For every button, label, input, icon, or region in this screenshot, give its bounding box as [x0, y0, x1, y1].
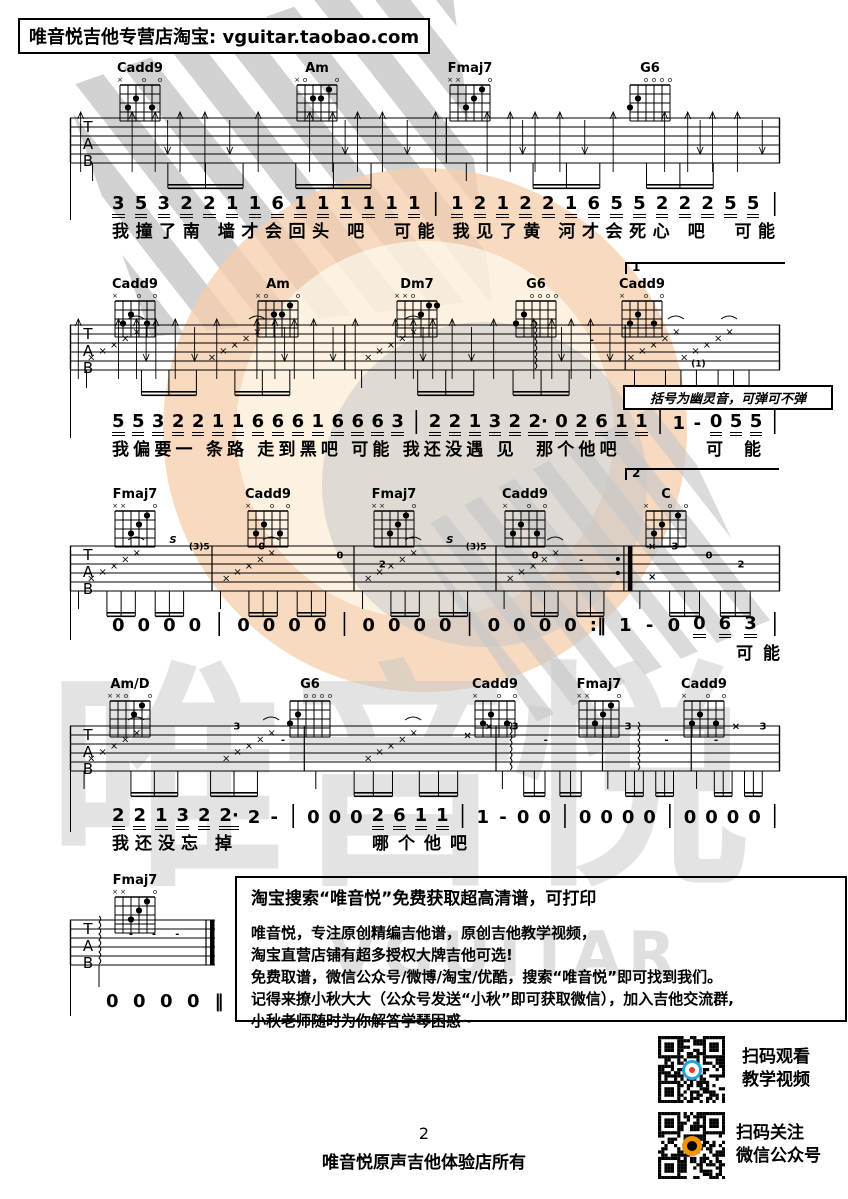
lyrics-row: 我偏要一条路走到黑吧可能我还没遇见那个他吧 [112, 440, 617, 460]
lyric-char: 我 [112, 440, 129, 460]
melody-number: 1 [415, 806, 428, 830]
lyric-char: 可 [706, 440, 723, 460]
lyric-char: 撞 [136, 222, 153, 242]
svg-text:×: × [364, 753, 372, 764]
melody-number: 5 [747, 194, 760, 218]
melody-number: 3 [112, 194, 125, 218]
lyric-char: 吧 [347, 222, 364, 242]
svg-text:0: 0 [258, 542, 265, 553]
svg-text:-: - [175, 929, 179, 940]
lyric-char: 能 [417, 222, 434, 242]
svg-text:-: - [714, 735, 718, 746]
lyric-char: 头 [312, 222, 329, 242]
svg-text:×: × [121, 555, 129, 566]
svg-text:-: - [152, 929, 156, 940]
svg-text:×: × [110, 561, 118, 572]
svg-text:×: × [117, 76, 123, 84]
tab-staff: TAB [68, 104, 784, 198]
lyric-char [527, 440, 532, 460]
lyric-char: 忘 [181, 834, 198, 854]
lyric-char: 河 [558, 222, 575, 242]
melody-number: 3 [158, 194, 171, 218]
svg-text:×: × [455, 76, 461, 84]
melody-number: 3 [176, 806, 189, 830]
svg-text:o: o [270, 502, 274, 510]
lyric-char: 才 [582, 222, 599, 242]
melody-number: 2· [528, 412, 547, 436]
svg-text:×: × [648, 542, 656, 553]
svg-text:×: × [256, 735, 264, 746]
chord-label: Fmaj7 [366, 488, 422, 501]
svg-text:×: × [627, 352, 635, 363]
svg-text:×: × [121, 334, 129, 345]
chord-label: G6 [622, 62, 678, 75]
melody-number: 0 [388, 614, 401, 638]
melody-number: 0 [693, 614, 706, 638]
svg-text:(1): (1) [691, 359, 706, 369]
lyric-char [342, 440, 347, 460]
lyric-char [336, 222, 341, 242]
lyric-char: 墙 [218, 222, 235, 242]
lyric-char [731, 440, 736, 460]
svg-text:o: o [264, 292, 268, 300]
lyric-char: 走 [257, 440, 274, 460]
lyric-char: 我 [403, 440, 420, 460]
chord-label: Fmaj7 [442, 62, 498, 75]
melody-number: 0 [622, 806, 635, 830]
svg-text:0: 0 [532, 551, 539, 562]
lyric-char: 了 [159, 222, 176, 242]
svg-text:×: × [409, 548, 417, 559]
svg-text:×: × [242, 334, 250, 345]
melody-number: 6 [271, 194, 284, 218]
svg-text:o: o [684, 502, 688, 510]
lyric-char: 能 [372, 440, 389, 460]
melody-number: 2 [112, 806, 125, 830]
lyric-char: 我 [112, 222, 129, 242]
melody-number: 0 [329, 806, 342, 830]
melody-number: 0 [579, 806, 592, 830]
svg-text:×: × [394, 292, 400, 300]
lyric-char: 能 [758, 222, 775, 242]
lyric-char: 会 [265, 222, 282, 242]
svg-text:o: o [328, 692, 332, 700]
svg-text:o: o [722, 692, 726, 700]
svg-text:o: o [411, 292, 415, 300]
lyric-char: 没 [445, 440, 462, 460]
chord-label: Am/D [102, 678, 158, 691]
svg-text:-: - [544, 735, 548, 746]
melody-number: 1 [615, 412, 628, 436]
ghost-note-box: 括号为幽灵音，可弹可不弹 [623, 385, 833, 410]
melody-numbers-row: 0000‖ [106, 990, 224, 1014]
promo-line: 唯音悦，专注原创精编吉他谱，原创吉他教学视频， [251, 922, 831, 944]
melody-number: 0 [488, 614, 501, 638]
lyric-char: 能 [763, 644, 780, 664]
page-number: 2 [0, 1124, 848, 1143]
svg-text:×: × [691, 346, 699, 357]
chord-label: C [638, 488, 694, 501]
melody-number: 0 [133, 990, 146, 1014]
svg-text:×: × [540, 555, 548, 566]
svg-text:o: o [660, 76, 664, 84]
melody-number: 1 [565, 194, 578, 218]
svg-text:×: × [680, 352, 688, 363]
melody-number: 2 [172, 412, 185, 436]
promo-line: 免费取谱，微信公众号/微博/淘宝/优酷，搜索“唯音悦”即可找到我们。 [251, 966, 831, 988]
qr-video-caption-line2: 教学视频 [742, 1069, 810, 1092]
svg-text:×: × [732, 722, 740, 733]
melody-number: 3 [152, 412, 165, 436]
svg-text:×: × [529, 561, 537, 572]
melody-number: 0 [668, 614, 681, 638]
lyric-char: 吧 [600, 440, 617, 460]
svg-text:×: × [87, 753, 95, 764]
svg-text:×: × [133, 728, 141, 739]
svg-text:B: B [83, 152, 93, 170]
melody-number: - [645, 614, 655, 638]
svg-text:S: S [446, 535, 453, 546]
chord-label: Am [289, 62, 345, 75]
melody-number: 1 [469, 412, 482, 436]
melody-number: 2 [449, 412, 462, 436]
promo-line: 淘宝直营店铺有超多授权大牌吉他可选! [251, 944, 831, 966]
system-rail [70, 591, 71, 640]
svg-text:o: o [543, 502, 547, 510]
melody-number: 5 [633, 194, 646, 218]
melody-number: 2 [133, 806, 146, 830]
svg-text:S: S [169, 535, 176, 546]
lyrics-row: 我撞了南墙才会回头吧可能我见了黄河才会死心吧可能 [112, 222, 775, 242]
svg-text:×: × [398, 334, 406, 345]
melody-number: 2 [542, 194, 555, 218]
svg-text:×: × [506, 573, 514, 584]
chord-label: Cadd9 [676, 678, 732, 691]
tab-staff: TAB--- [68, 906, 219, 1000]
melody-number: 6 [272, 412, 285, 436]
lyric-char: 还 [424, 440, 441, 460]
svg-text:T: T [82, 726, 93, 744]
svg-text:2: 2 [737, 560, 744, 571]
svg-text:3: 3 [625, 722, 632, 733]
lyric-char: 还 [135, 834, 152, 854]
svg-text:×: × [387, 561, 395, 572]
melody-number: 0 [564, 614, 577, 638]
svg-text:T: T [82, 920, 93, 938]
melody-number: 1 [362, 194, 375, 218]
lyric-char: 可 [394, 222, 411, 242]
melody-number: 5 [610, 194, 623, 218]
melody-number: 5 [135, 194, 148, 218]
lyric-char: 能 [744, 440, 761, 460]
melody-number: 6 [331, 412, 344, 436]
svg-text:×: × [87, 573, 95, 584]
svg-text:o: o [286, 502, 290, 510]
svg-text:×: × [447, 76, 453, 84]
chord-label: Cadd9 [107, 278, 163, 291]
melody-number: 0 [314, 614, 327, 638]
melody-number: 0 [684, 806, 697, 830]
lyric-char: 心 [653, 222, 670, 242]
promo-line: 小秋老师随时为你解答学琴困惑~ [251, 1010, 831, 1032]
svg-text:o: o [153, 292, 157, 300]
melody-number: 0 [555, 412, 568, 436]
melody-number: 1 [155, 806, 168, 830]
lyric-char: 吧 [688, 222, 705, 242]
lyrics-row: 我还没忘掉 [112, 834, 232, 854]
system-rail [70, 771, 71, 832]
melody-number: ‖ [214, 990, 224, 1014]
lyric-char: 吧 [450, 834, 467, 854]
lyric-char: 可 [351, 440, 368, 460]
lyric-char [248, 440, 253, 460]
svg-text:o: o [153, 502, 157, 510]
lyric-char: 黑 [300, 440, 317, 460]
svg-text:o: o [142, 76, 146, 84]
svg-text:×: × [208, 352, 216, 363]
svg-text:o: o [527, 502, 531, 510]
svg-text:×: × [375, 346, 383, 357]
melody-number: 3 [391, 412, 404, 436]
melody-number: 1 [496, 194, 509, 218]
svg-text:T: T [82, 546, 93, 564]
chord-label: Fmaj7 [107, 488, 163, 501]
melody-number: 1 [317, 194, 330, 218]
lyric-char: 我 [453, 222, 470, 242]
svg-text:o: o [668, 502, 672, 510]
svg-text:-: - [590, 335, 594, 346]
svg-text:×: × [120, 888, 126, 896]
chord-label: Am [250, 278, 306, 291]
melody-number: | [411, 406, 421, 436]
melody-number: | [770, 608, 780, 638]
lyric-char: 南 [183, 222, 200, 242]
svg-text:×: × [267, 548, 275, 559]
volta-label: 2 [630, 466, 642, 480]
melody-number: 1 [408, 194, 421, 218]
melody-number: | [458, 800, 468, 830]
melody-number: 5 [724, 194, 737, 218]
svg-text:o: o [158, 76, 162, 84]
svg-text:×: × [551, 548, 559, 559]
svg-text:×: × [672, 327, 680, 338]
melody-number: 1 [385, 194, 398, 218]
lyric-char [382, 222, 387, 242]
melody-number: 6 [292, 412, 305, 436]
lyric-char: 他 [424, 834, 441, 854]
melody-number: 5 [112, 412, 125, 436]
svg-text:×: × [463, 731, 471, 742]
melody-number: 5 [132, 412, 145, 436]
qr-code-video [658, 1036, 725, 1107]
svg-text:×: × [371, 502, 377, 510]
lyric-char: 吧 [321, 440, 338, 460]
melody-number: 2 [372, 806, 385, 830]
lyric-char [204, 834, 209, 854]
melody-number: | [288, 800, 298, 830]
melody-number: | [465, 608, 475, 638]
svg-text:o: o [412, 502, 416, 510]
svg-text:×: × [643, 502, 649, 510]
melody-numbers-row: 221322·2-|0002611|1-00|0000|0000| [112, 806, 780, 830]
svg-text:×: × [661, 334, 669, 345]
melody-number: - [498, 806, 508, 830]
svg-text:×: × [112, 888, 118, 896]
lyric-char: 回 [289, 222, 306, 242]
melody-number: 0 [307, 806, 320, 830]
melody-number: 0 [163, 614, 176, 638]
melody-number: | [560, 800, 570, 830]
melody-number: 6 [393, 806, 406, 830]
melody-number: 0 [439, 614, 452, 638]
svg-text:×: × [387, 340, 395, 351]
melody-number: 3 [489, 412, 502, 436]
melody-number: 5 [750, 412, 763, 436]
melody-number: 6 [588, 194, 601, 218]
melody-number: 3 [744, 614, 757, 638]
melody-number: 1 [294, 194, 307, 218]
svg-text:×: × [231, 340, 239, 351]
lyric-char: 个 [557, 440, 574, 460]
svg-text:o: o [513, 692, 517, 700]
lyric-char: 可 [734, 222, 751, 242]
melody-number: | [431, 188, 441, 218]
lyric-char: 见 [476, 222, 493, 242]
lyric-char: 了 [500, 222, 517, 242]
svg-text:o: o [660, 292, 664, 300]
lyrics-row: 可能 [736, 644, 780, 664]
svg-text:o: o [546, 292, 550, 300]
lyric-char [394, 440, 399, 460]
melody-number: 1 [312, 412, 325, 436]
video-logo-icon [682, 1060, 702, 1080]
svg-text:×: × [398, 555, 406, 566]
melody-number: 6 [595, 412, 608, 436]
melody-number: 0 [237, 614, 250, 638]
lyric-char: 一 [176, 440, 193, 460]
melody-number: - [269, 806, 279, 830]
svg-text:-: - [579, 555, 583, 566]
svg-text:o: o [137, 292, 141, 300]
melody-number: 0 [189, 614, 202, 638]
lyric-char: 没 [158, 834, 175, 854]
lyric-char: 个 [398, 834, 415, 854]
melody-number: 1 [451, 194, 464, 218]
lyric-char [547, 222, 552, 242]
svg-text:×: × [485, 722, 493, 733]
melody-number: 1 [226, 194, 239, 218]
svg-text:×: × [222, 753, 230, 764]
melody-number: 5 [730, 412, 743, 436]
lyric-char: 遇 [466, 440, 483, 460]
lyric-char: 会 [606, 222, 623, 242]
svg-text:o: o [304, 692, 308, 700]
lyric-char: 到 [279, 440, 296, 460]
svg-text:×: × [409, 327, 417, 338]
svg-text:o: o [497, 692, 501, 700]
svg-text:×: × [387, 741, 395, 752]
svg-text:3: 3 [512, 722, 519, 733]
melody-number: 0 [263, 614, 276, 638]
svg-text:o: o [644, 76, 648, 84]
system-rail [70, 370, 71, 438]
melody-number: 2 [509, 412, 522, 436]
svg-text:o: o [312, 692, 316, 700]
chord-label: Cadd9 [112, 62, 168, 75]
melody-number: 2 [203, 194, 216, 218]
svg-text:0: 0 [706, 551, 713, 562]
melody-number: 2 [429, 412, 442, 436]
svg-text:×: × [133, 327, 141, 338]
svg-text:×: × [638, 346, 646, 357]
svg-text:T: T [82, 325, 93, 343]
system-rail [70, 965, 71, 1016]
melody-number: 1 [249, 194, 262, 218]
melody-number: 0 [138, 614, 151, 638]
svg-text:2: 2 [379, 560, 386, 571]
qr-video-caption-line1: 扫码观看 [742, 1046, 810, 1069]
melody-number: 0 [727, 806, 740, 830]
lyric-char [206, 222, 211, 242]
chord-label: G6 [282, 678, 338, 691]
melody-number: | [770, 406, 780, 436]
svg-text:×: × [98, 346, 106, 357]
melody-number: 2 [679, 194, 692, 218]
melody-number: 0 [600, 806, 613, 830]
svg-text:o: o [530, 292, 534, 300]
lyric-char [676, 222, 681, 242]
svg-text:×: × [256, 555, 264, 566]
chord-label: Cadd9 [240, 488, 296, 501]
melody-number: 6 [351, 412, 364, 436]
svg-text:×: × [619, 292, 625, 300]
promo-title: 淘宝搜索“唯音悦”免费获取超高清谱，可打印 [251, 884, 831, 909]
melody-number: 0 [160, 990, 173, 1014]
lyric-char: 见 [497, 440, 514, 460]
copyright-text: 唯音悦原声吉他体验店所有 [0, 1148, 848, 1173]
svg-text:×: × [222, 573, 230, 584]
svg-text:×: × [98, 567, 106, 578]
svg-text:×: × [472, 692, 478, 700]
svg-text:×: × [112, 502, 118, 510]
melody-number: 2 [248, 806, 261, 830]
lyric-char [518, 440, 523, 460]
svg-text:×: × [584, 692, 590, 700]
svg-text:o: o [320, 692, 324, 700]
melody-number: 0 [350, 806, 363, 830]
melody-number: 1 [340, 194, 353, 218]
melody-number: 2 [656, 194, 669, 218]
svg-text:×: × [245, 502, 251, 510]
melody-number: 0 [748, 806, 761, 830]
svg-text:A: A [83, 135, 94, 153]
qr-video-caption: 扫码观看 教学视频 [742, 1046, 810, 1092]
melody-number: 0 [362, 614, 375, 638]
melody-numbers-row: 35322116111111|12122165522255| [112, 194, 780, 218]
lyric-char [441, 222, 446, 242]
svg-text:×: × [294, 76, 300, 84]
melody-number: 1 [212, 412, 225, 436]
melody-number: 6 [252, 412, 265, 436]
svg-text:o: o [652, 76, 656, 84]
chord-label: Fmaj7 [107, 874, 163, 887]
video-logo-dot [689, 1067, 695, 1073]
svg-text:×: × [375, 747, 383, 758]
melody-number: 1 [232, 412, 245, 436]
melody-number: 0 [112, 614, 125, 638]
lyric-char: 要 [154, 440, 171, 460]
svg-text:×: × [364, 352, 372, 363]
